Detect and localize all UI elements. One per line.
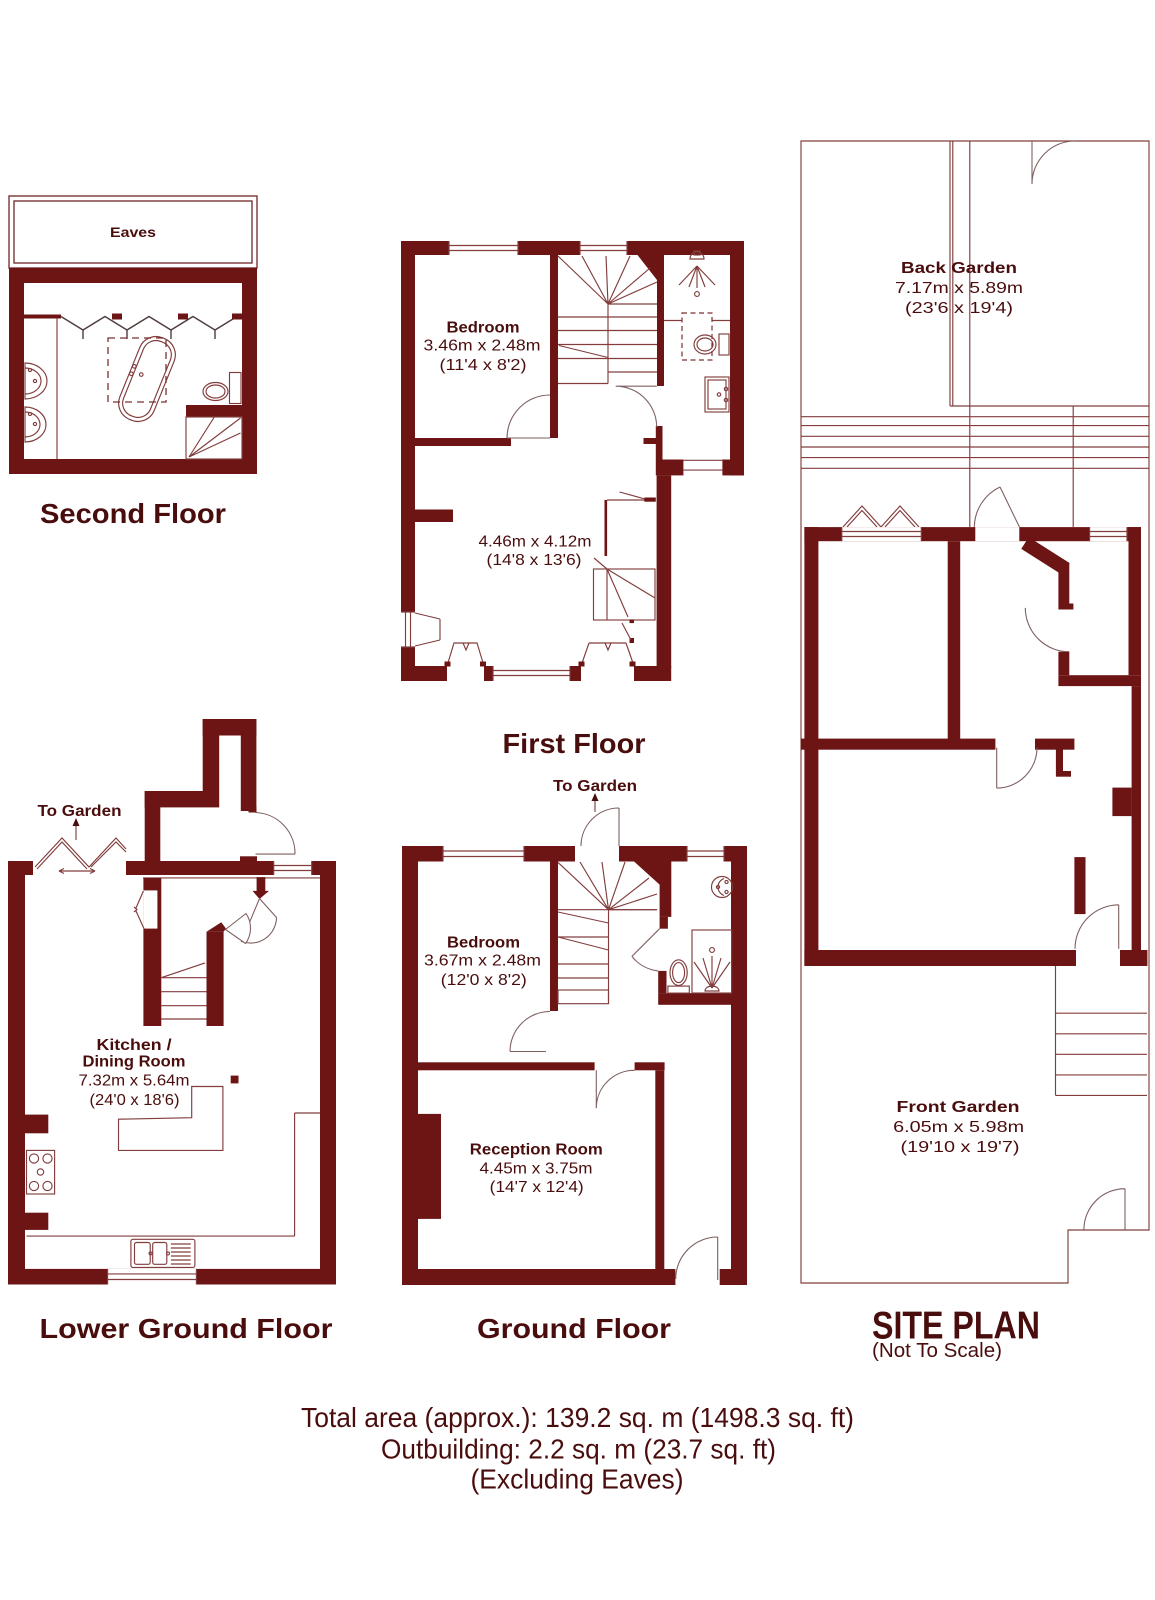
svg-text:(11'4 x 8'2): (11'4 x 8'2) [440,357,527,374]
svg-text:3.67m x 2.48m: 3.67m x 2.48m [424,953,541,970]
svg-text:Ground Floor: Ground Floor [477,1313,671,1344]
svg-text:4.45m x 3.75m: 4.45m x 3.75m [480,1161,593,1178]
svg-text:Reception Room: Reception Room [470,1141,603,1158]
svg-text:(12'0 x 8'2): (12'0 x 8'2) [441,972,527,989]
svg-text:To Garden: To Garden [553,778,637,795]
svg-text:(19'10 x 19'7): (19'10 x 19'7) [901,1139,1020,1156]
svg-text:(24'0 x 18'6): (24'0 x 18'6) [90,1092,180,1109]
svg-text:Back Garden: Back Garden [901,260,1017,277]
svg-text:Dining Room: Dining Room [83,1054,186,1071]
svg-text:Eaves: Eaves [110,224,156,240]
svg-text:(14'8 x 13'6): (14'8 x 13'6) [487,552,582,569]
svg-text:(23'6 x 19'4): (23'6 x 19'4) [905,300,1013,317]
svg-text:Total area (approx.): 139.2 sq: Total area (approx.): 139.2 sq. m (1498.… [301,1402,854,1433]
svg-text:(Not To Scale): (Not To Scale) [872,1340,1002,1362]
svg-text:Lower Ground Floor: Lower Ground Floor [40,1313,333,1344]
svg-text:(14'7 x 12'4): (14'7 x 12'4) [490,1179,584,1196]
svg-text:Kitchen /: Kitchen / [97,1037,173,1054]
svg-text:7.17m x 5.89m: 7.17m x 5.89m [895,280,1023,297]
svg-text:3.46m x 2.48m: 3.46m x 2.48m [424,338,541,355]
svg-text:(Excluding Eaves): (Excluding Eaves) [471,1464,684,1495]
svg-text:To Garden: To Garden [38,803,122,820]
svg-text:4.46m x 4.12m: 4.46m x 4.12m [479,534,592,551]
svg-text:Front Garden: Front Garden [897,1099,1020,1116]
svg-text:6.05m x 5.98m: 6.05m x 5.98m [893,1119,1024,1136]
svg-text:Bedroom: Bedroom [447,319,520,336]
svg-text:Bedroom: Bedroom [447,935,520,952]
svg-text:Second Floor: Second Floor [40,498,226,529]
svg-text:First Floor: First Floor [503,728,646,759]
svg-text:7.32m x 5.64m: 7.32m x 5.64m [79,1072,190,1089]
svg-text:Outbuilding: 2.2 sq. m (23.7 s: Outbuilding: 2.2 sq. m (23.7 sq. ft) [381,1434,776,1465]
